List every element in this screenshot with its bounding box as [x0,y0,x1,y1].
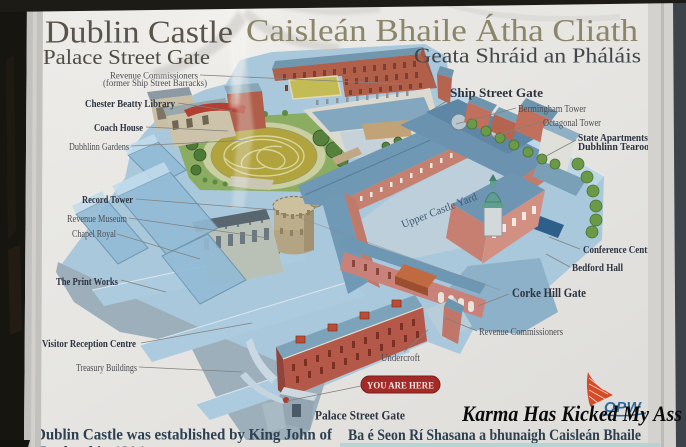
svg-text:Octagonal Tower: Octagonal Tower [543,118,602,129]
svg-text:Ba é Seon Rí Shasana a bhunaig: Ba é Seon Rí Shasana a bhunaigh Caisleán… [348,427,641,444]
svg-text:Revenue Commissioners: Revenue Commissioners [479,327,563,338]
svg-text:Geata Shráid an Pháláis: Geata Shráid an Pháláis [414,44,641,68]
svg-text:Palace Street Gate: Palace Street Gate [43,45,210,69]
svg-text:Chapel Royal: Chapel Royal [72,229,116,240]
svg-text:Revenue Museum: Revenue Museum [67,214,127,225]
svg-text:Treasury Buildings: Treasury Buildings [76,363,137,374]
svg-text:Karma Has Kicked My Ass: Karma Has Kicked My Ass [461,401,682,426]
svg-text:Visitor Reception Centre: Visitor Reception Centre [42,339,136,350]
svg-text:The Print Works: The Print Works [56,277,118,288]
svg-text:Palace Street Gate: Palace Street Gate [315,408,405,423]
svg-text:Chester Beatty Library: Chester Beatty Library [85,99,176,110]
svg-text:Dubhlinn Gardens: Dubhlinn Gardens [69,142,129,153]
svg-text:Ship Street Gate: Ship Street Gate [450,86,543,100]
svg-text:Coach House: Coach House [94,123,143,134]
svg-text:YOU ARE HERE: YOU ARE HERE [367,382,434,392]
svg-text:Bermingham Tower: Bermingham Tower [518,104,587,115]
svg-text:Bedford Hall: Bedford Hall [572,263,623,274]
svg-text:Corke Hill Gate: Corke Hill Gate [512,285,586,300]
svg-text:(former Ship Street Barracks): (former Ship Street Barracks) [103,78,207,88]
svg-text:Undercroft: Undercroft [381,353,420,364]
svg-text:Dublin Castle was established: Dublin Castle was established by King Jo… [35,427,333,444]
svg-text:Conference Centre: Conference Centre [583,245,655,256]
svg-text:Record Tower: Record Tower [82,195,133,206]
